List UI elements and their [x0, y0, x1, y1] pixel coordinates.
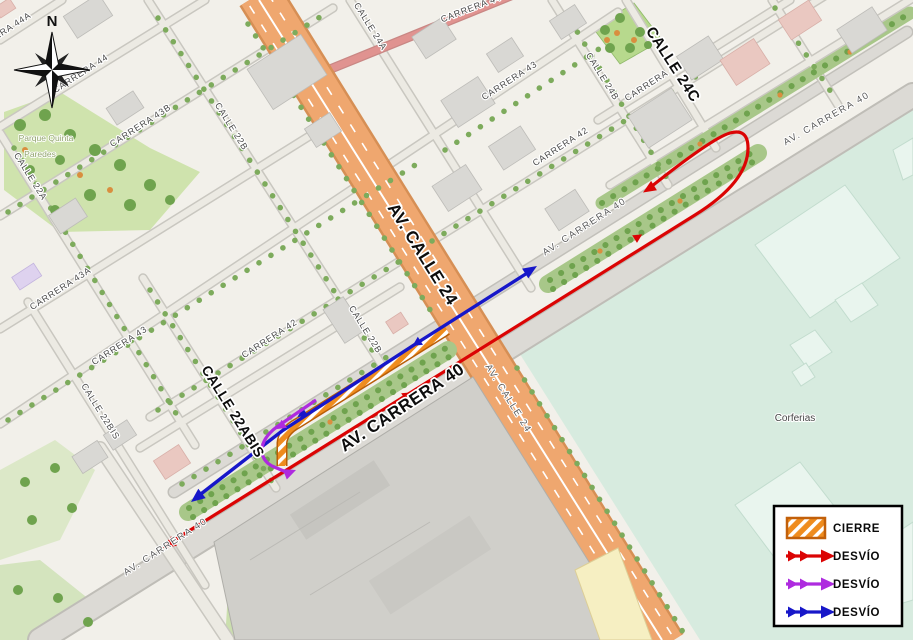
map-svg: CARRERA 44A CARRERA 44 CARRERA 44 CARRER…: [0, 0, 913, 640]
legend-detour-purple-label: DESVÍO: [833, 578, 880, 591]
label-parque-line2: Paredes: [24, 149, 56, 159]
legend: CIERRE DESVÍO DESVÍO DESVÍO: [774, 506, 902, 626]
legend-closure-swatch: [787, 518, 825, 538]
label-parque-line1: Parque Quinta: [19, 133, 74, 143]
legend-closure-label: CIERRE: [833, 523, 880, 535]
legend-detour-blue-label: DESVÍO: [833, 606, 880, 619]
legend-detour-red-label: DESVÍO: [833, 550, 880, 563]
label-corferias: Corferias: [775, 413, 816, 424]
map-canvas: CARRERA 44A CARRERA 44 CARRERA 44 CARRER…: [0, 0, 913, 640]
compass-north-label: N: [47, 13, 58, 30]
